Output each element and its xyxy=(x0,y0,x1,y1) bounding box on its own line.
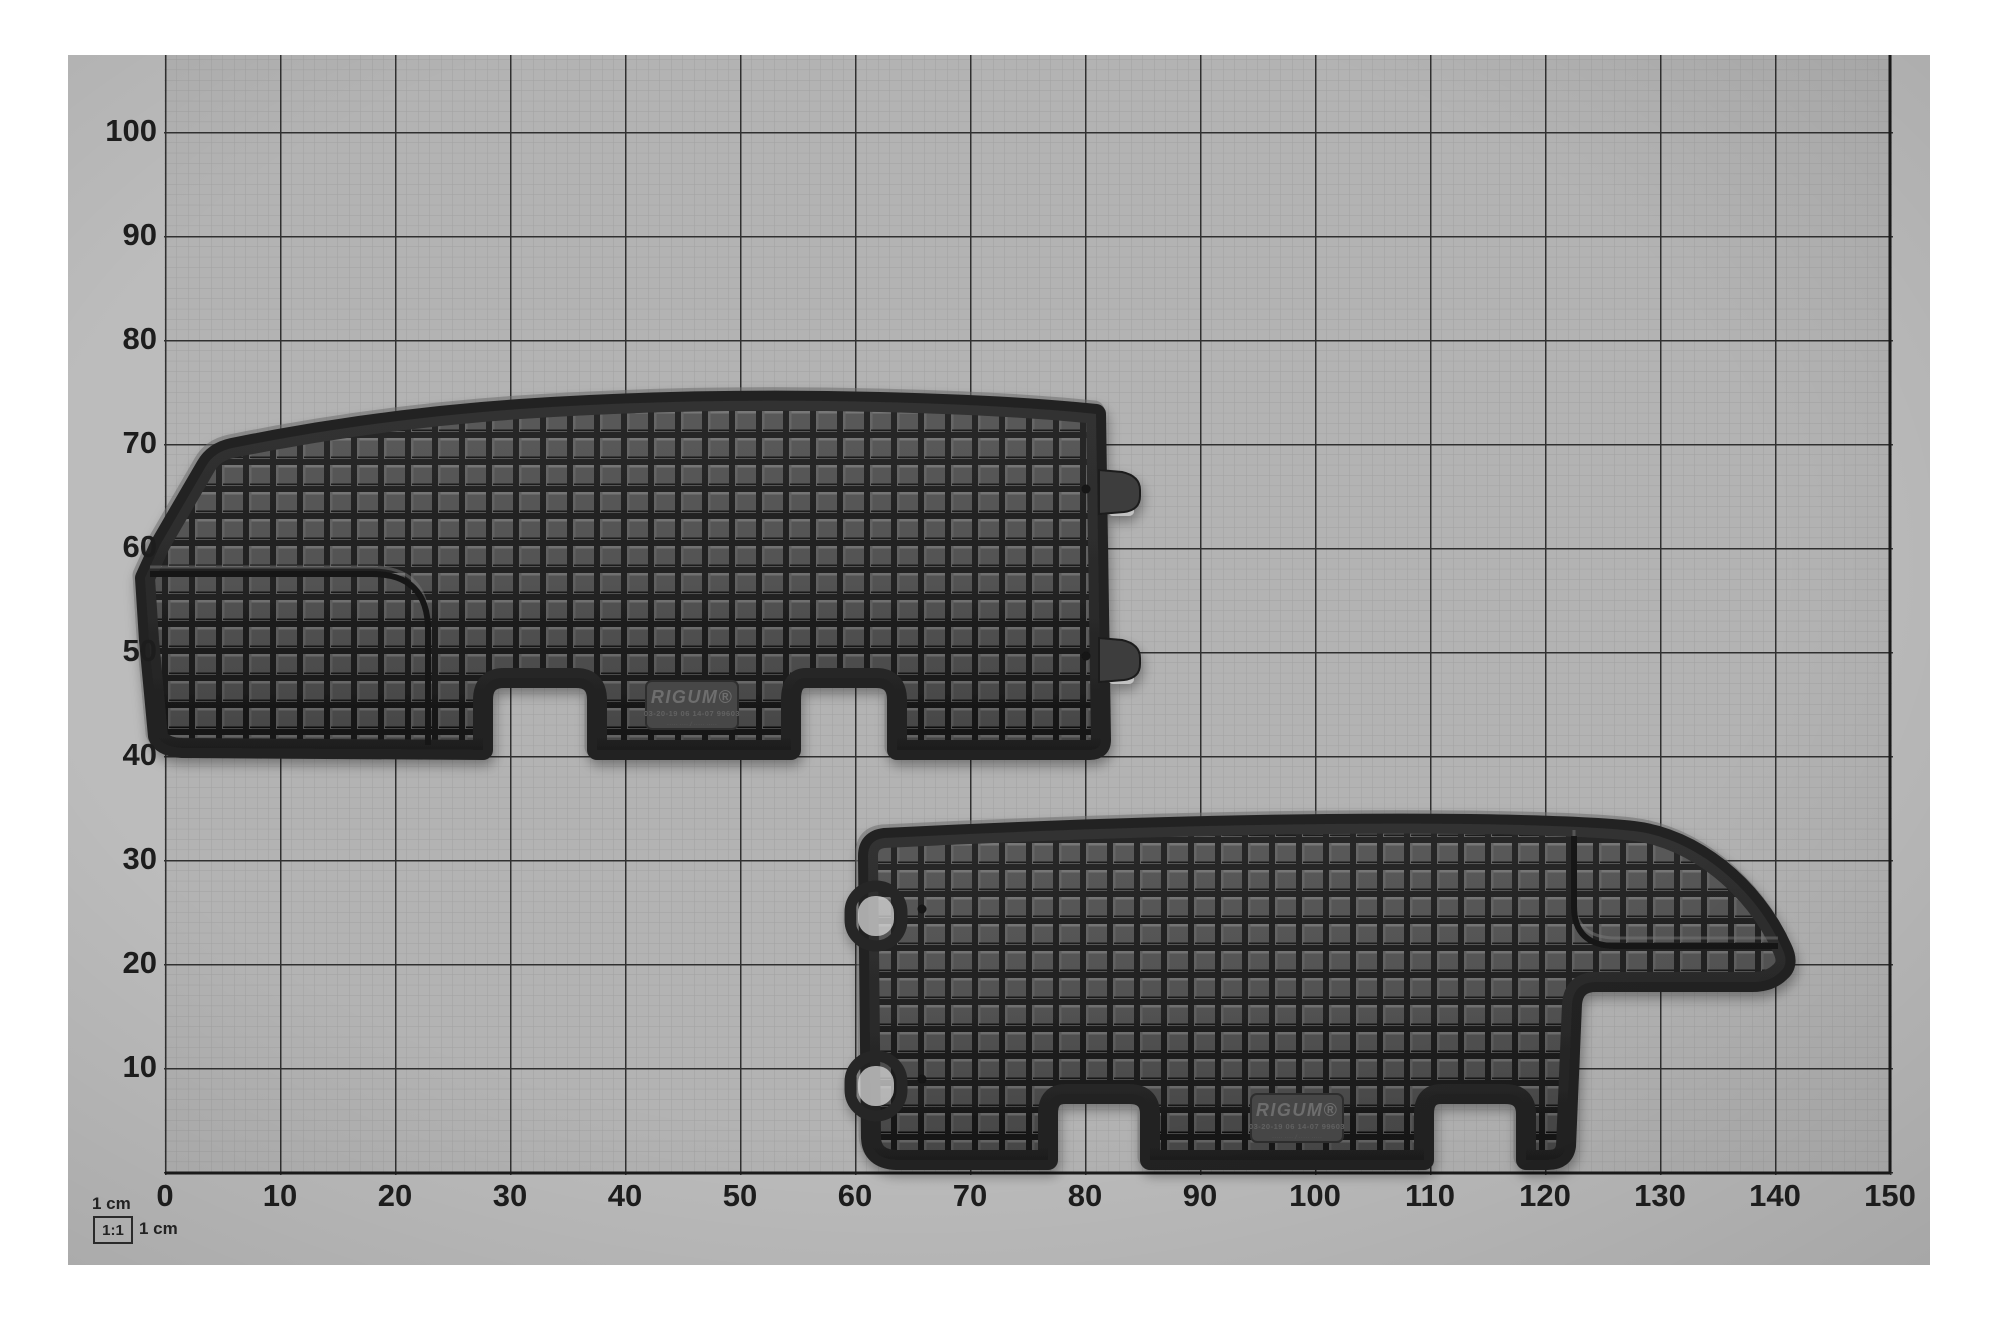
x-axis-tick-label: 40 xyxy=(608,1180,642,1212)
x-axis-tick-label: 80 xyxy=(1068,1180,1102,1212)
y-axis-tick-label: 20 xyxy=(123,947,157,979)
x-axis-tick-label: 30 xyxy=(493,1180,527,1212)
y-axis-tick-label: 70 xyxy=(123,427,157,459)
x-axis-tick-label: 70 xyxy=(953,1180,987,1212)
x-axis-tick-label: 120 xyxy=(1519,1180,1571,1212)
scale-ratio-text: 1:1 xyxy=(102,1222,124,1239)
x-axis-tick-label: 100 xyxy=(1289,1180,1341,1212)
x-axis-tick-label: 110 xyxy=(1405,1180,1455,1212)
y-axis-tick-label: 60 xyxy=(123,531,157,563)
scale-ratio-box: 1:1 xyxy=(93,1216,133,1244)
x-axis-tick-label: 140 xyxy=(1749,1180,1801,1212)
y-axis-tick-label: 30 xyxy=(123,843,157,875)
scale-unit-label: 1 cm xyxy=(92,1194,131,1214)
x-axis-tick-label: 60 xyxy=(838,1180,872,1212)
y-axis-tick-label: 100 xyxy=(105,115,157,147)
y-axis-tick-label: 90 xyxy=(123,219,157,251)
x-axis-tick-label: 20 xyxy=(378,1180,412,1212)
x-axis-tick-label: 130 xyxy=(1634,1180,1686,1212)
x-axis-tick-label: 90 xyxy=(1183,1180,1217,1212)
x-axis-tick-label: 50 xyxy=(723,1180,757,1212)
x-axis-tick-label: 0 xyxy=(156,1180,173,1212)
x-axis-tick-label: 150 xyxy=(1864,1180,1916,1212)
y-axis-tick-label: 80 xyxy=(123,323,157,355)
measurement-photo: RIGUM® 03-20-19 06 14-07 99603 ····· ···… xyxy=(0,0,2000,1324)
y-axis-tick-label: 10 xyxy=(123,1051,157,1083)
y-axis-tick-label: 40 xyxy=(123,739,157,771)
x-axis-tick-label: 10 xyxy=(263,1180,297,1212)
y-axis-tick-label: 50 xyxy=(123,635,157,667)
photo-vignette xyxy=(68,55,1930,1265)
scale-unit-label-2: 1 cm xyxy=(139,1219,178,1239)
